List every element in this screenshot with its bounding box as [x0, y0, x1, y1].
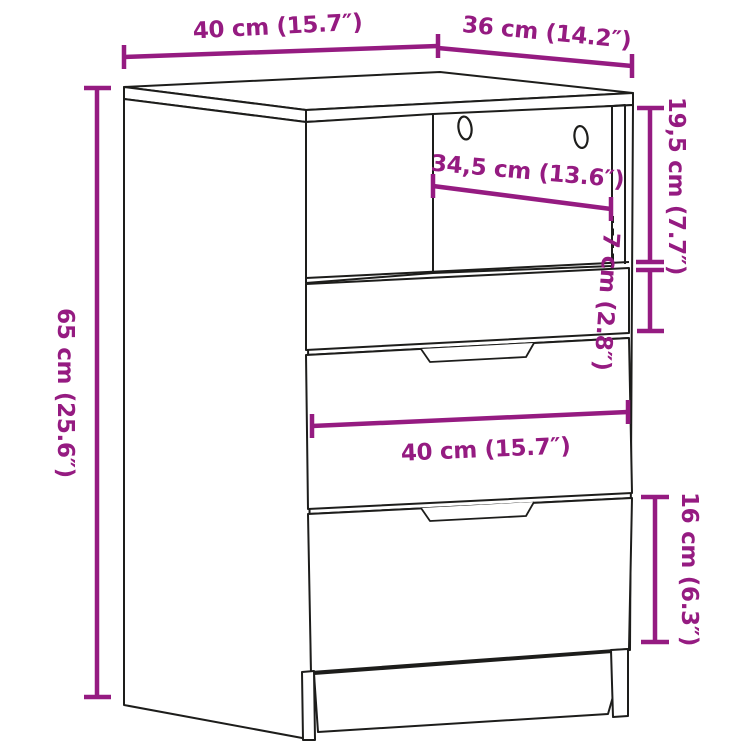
- dim-label: 36 cm (14.2″): [461, 12, 632, 54]
- dim-height: 65 cm (25.6″): [52, 88, 111, 697]
- front-right-leg: [611, 649, 628, 717]
- front-left-leg: [302, 671, 315, 740]
- dim-label: 16 cm (6.3″): [676, 492, 702, 646]
- dimension-diagram-page: 40 cm (15.7″) 36 cm (14.2″) 65 cm (25.6″…: [0, 0, 750, 750]
- dim-top-depth: 36 cm (14.2″): [438, 12, 632, 78]
- dim-label: 65 cm (25.6″): [52, 308, 78, 478]
- dim-bottom-drawer-height: 16 cm (6.3″): [641, 492, 702, 646]
- dim-compartment-height: 19,5 cm (7.7″): [636, 97, 689, 275]
- cabinet-dimension-diagram: 40 cm (15.7″) 36 cm (14.2″) 65 cm (25.6″…: [0, 0, 750, 750]
- dim-label: 40 cm (15.7″): [192, 10, 363, 45]
- dim-line: [124, 46, 438, 57]
- cabinet-side-panel: [124, 99, 313, 740]
- dim-top-width: 40 cm (15.7″): [124, 10, 438, 69]
- compartment-left-inner-wall: [306, 114, 433, 283]
- dim-label: 19,5 cm (7.7″): [663, 97, 689, 275]
- bottom-drawer-front: [308, 498, 632, 672]
